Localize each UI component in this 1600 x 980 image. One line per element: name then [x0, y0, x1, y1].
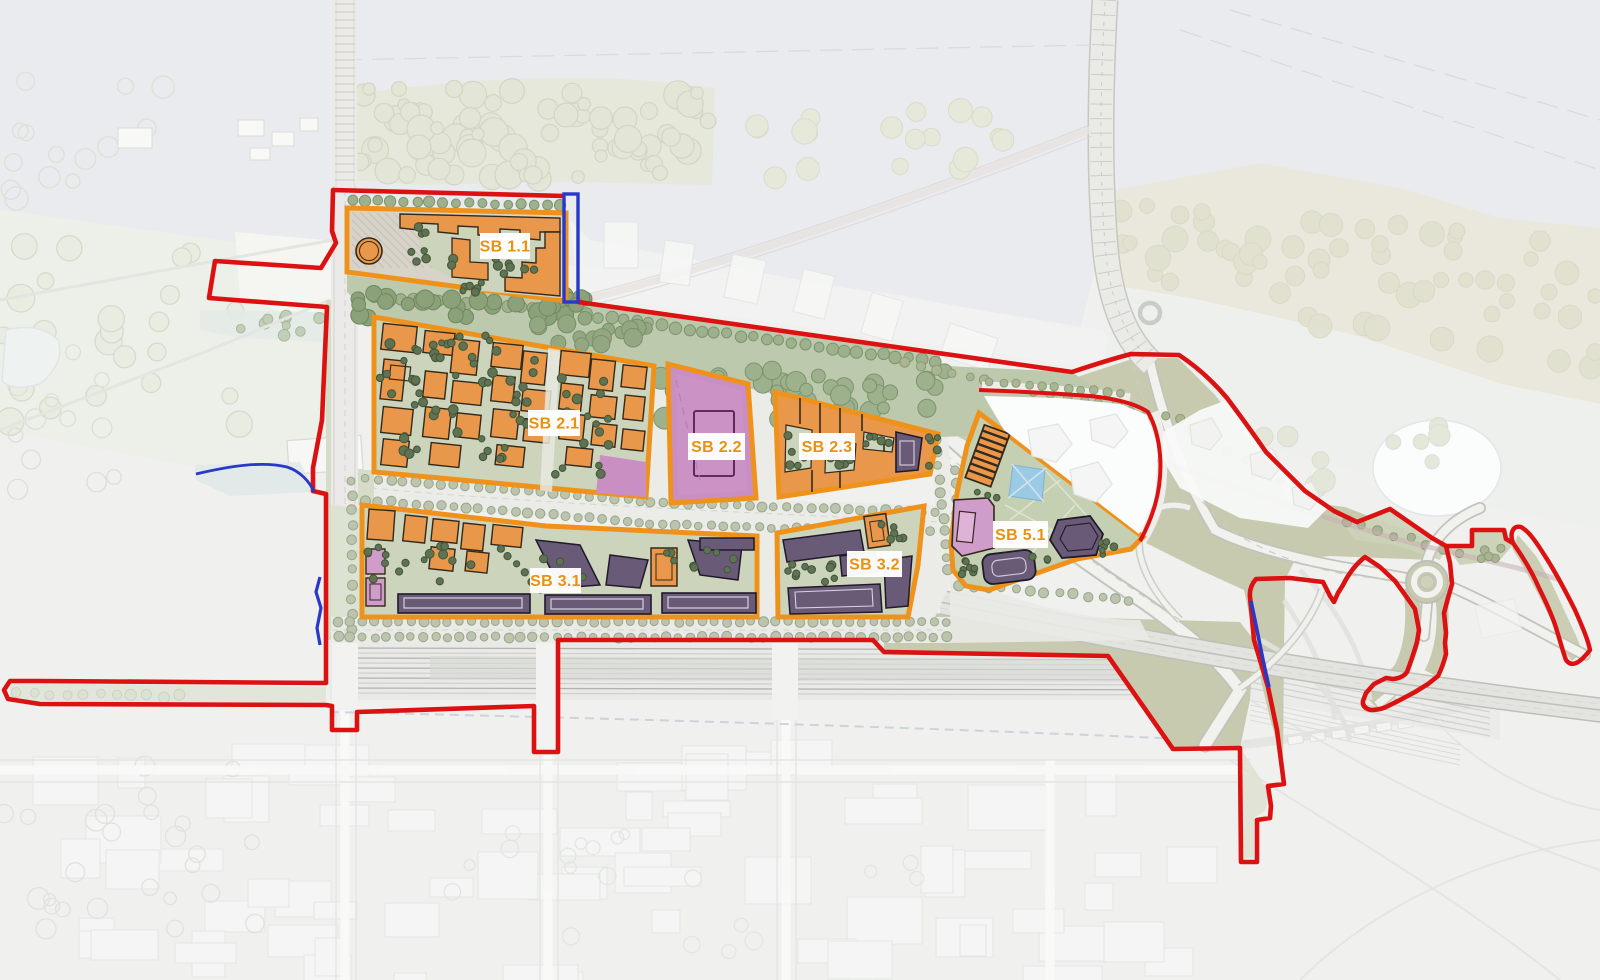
svg-text:SB 2.2: SB 2.2 [691, 439, 742, 456]
svg-text:SB 2.3: SB 2.3 [802, 439, 853, 456]
svg-text:SB 3.1: SB 3.1 [530, 573, 581, 590]
svg-text:SB 2.1: SB 2.1 [529, 416, 580, 433]
svg-text:SB 5.1: SB 5.1 [995, 527, 1046, 544]
svg-text:SB 3.2: SB 3.2 [849, 557, 900, 574]
svg-text:SB 1.1: SB 1.1 [480, 239, 531, 256]
